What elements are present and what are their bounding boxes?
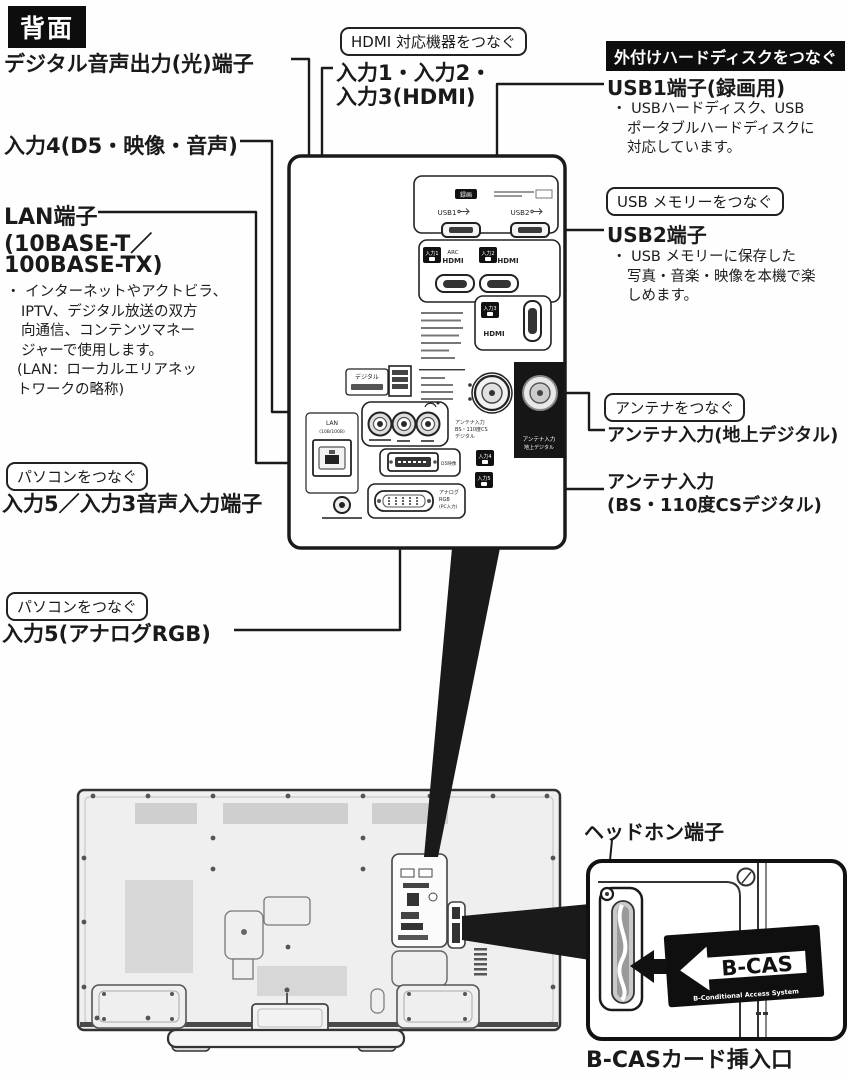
analog-rgb-label2: RGB <box>439 497 450 503</box>
tv-panel-plate-left <box>125 880 193 973</box>
lan-port <box>313 440 351 476</box>
bcas-logo: B-CAS <box>721 952 794 981</box>
hdmi1-label: HDMI <box>442 257 463 265</box>
antenna-terr-label1: アンテナ入力 <box>523 435 556 443</box>
analog-rgb-label3: (PC入力) <box>439 503 458 510</box>
hdmi3-label: HDMI <box>483 330 504 338</box>
label-digital-audio-out: デジタル音声出力(光)端子 <box>4 48 254 78</box>
label-antenna-bs-2: (BS・110度CSデジタル) <box>607 491 822 517</box>
note-line: (LAN：ローカルエリアネッ <box>17 361 227 381</box>
d5-label: D5映像 <box>441 460 457 467</box>
note-line: しめます。 <box>627 287 816 307</box>
tv-lower-recess <box>392 951 447 986</box>
note-line: 向通信、コンテンツマネー <box>21 322 227 342</box>
tv-label-box <box>264 897 310 925</box>
callout-connect-pc-2: パソコンをつなぐ <box>6 592 148 621</box>
callout-connect-hdmi: HDMI 対応機器をつなぐ <box>340 27 527 56</box>
label-input4: 入力4(D5・映像・音声) <box>4 130 238 160</box>
callout-connect-usb-memory: USB メモリーをつなぐ <box>606 187 784 216</box>
label-bcas-slot: B-CASカード挿入口 <box>586 1042 793 1074</box>
note-usb2: ・ USB メモリーに保存した 写真・音楽・映像を本機で楽 しめます。 <box>612 248 816 307</box>
hdmi3-section: 入力3 HDMI <box>475 296 551 350</box>
optical-port <box>389 366 411 396</box>
tv-panel-plate-center <box>257 966 347 996</box>
input1-badge-label: 入力1 <box>425 250 438 257</box>
label-hdmi-inputs-2: 入力3(HDMI) <box>336 81 476 111</box>
note-line: ・ インターネットやアクトビラ、 <box>6 283 227 303</box>
bcas-inset: B-CAS B-Conditional Access System <box>588 861 845 1039</box>
input3-badge-label: 入力3 <box>483 305 496 312</box>
lan-section: LAN (10B/100B) <box>306 413 358 493</box>
side-jack-strip <box>600 888 642 1010</box>
hdmi2-port <box>480 275 518 292</box>
rca-jack-video <box>393 413 416 436</box>
diagram-graphics: 録画 USB1 USB2 入力1 <box>0 0 849 1080</box>
note-usb1: ・ USBハードディスク、USB ポータブルハードディスクに 対応しています。 <box>612 100 814 159</box>
label-lan-3: 100BASE-TX) <box>4 253 163 278</box>
label-usb2: USB2端子 <box>607 219 707 248</box>
connector-panel: 録画 USB1 USB2 入力1 <box>289 156 565 548</box>
antenna-bs-label3: デジタル <box>455 433 475 440</box>
hdmi2-label: HDMI <box>497 257 518 265</box>
optical-out-section: デジタル <box>346 366 411 396</box>
bcas-card: B-CAS B-Conditional Access System <box>664 925 825 1008</box>
antenna-bs-label1: アンテナ入力 <box>455 419 485 426</box>
analog-rgb-label1: アナログ <box>439 489 459 496</box>
antenna-terr-connector <box>523 376 557 410</box>
usb1-port <box>442 223 480 237</box>
note-lan: ・ インターネットやアクトビラ、 IPTV、デジタル放送の双方 向通信、コンテン… <box>6 283 227 400</box>
label-input5-audio: 入力5／入力3音声入力端子 <box>2 488 262 518</box>
lan-speed-label: (10B/100B) <box>319 429 345 435</box>
d-terminal-section: D5映像 <box>380 449 460 476</box>
note-line: ・ USB メモリーに保存した <box>612 248 816 268</box>
label-antenna-terrestrial: アンテナ入力(地上デジタル) <box>607 421 838 447</box>
tv-vents <box>135 803 448 824</box>
manual-page: 録画 USB1 USB2 入力1 <box>0 0 849 1080</box>
note-line: 写真・音楽・映像を本機で楽 <box>627 268 816 288</box>
hdmi-section: 入力1 入力2 ARC HDMI HDMI <box>419 240 560 302</box>
rca-jack-audio <box>417 413 440 436</box>
arc-label: ARC <box>447 250 458 256</box>
antenna-bs-connector <box>475 376 509 410</box>
antenna-bs-label2: BS・110度CS <box>455 426 488 433</box>
usb1-port-label: USB1 <box>438 209 457 217</box>
tv-connector-recess <box>392 854 447 947</box>
note-line: ポータブルハードディスクに <box>627 120 814 140</box>
page-title: 背面 <box>8 6 86 48</box>
label-headphone: ヘッドホン端子 <box>584 816 724 845</box>
note-line: ジャーで使用します。 <box>21 342 227 362</box>
label-input5-rgb: 入力5(アナログRGB) <box>2 618 211 648</box>
note-line: トワークの略称) <box>17 381 227 401</box>
note-line: 対応しています。 <box>627 139 814 159</box>
usb-section: 録画 USB1 USB2 <box>414 176 558 237</box>
callout-connect-antenna: アンテナをつなぐ <box>604 393 745 422</box>
note-line: IPTV、デジタル放送の双方 <box>21 303 227 323</box>
input4-badge-label: 入力4 <box>478 453 491 460</box>
input2-badge-label: 入力2 <box>481 250 494 257</box>
hdmi3-port <box>524 301 541 341</box>
note-line: ・ USBハードディスク、USB <box>612 100 814 120</box>
rec-badge-label: 録画 <box>460 191 472 199</box>
hdmi1-port <box>436 275 474 292</box>
av-input-section <box>362 402 448 447</box>
callout-connect-hdd: 外付けハードディスクをつなぐ <box>606 41 845 71</box>
lan-label: LAN <box>326 420 338 427</box>
rgb-section: アナログ RGB (PC入力) <box>368 484 465 518</box>
antenna-terr-label2: 地上デジタル <box>524 444 554 451</box>
digital-label: デジタル <box>355 373 379 381</box>
input5-badge-label: 入力5 <box>477 475 490 482</box>
callout-connect-pc-1: パソコンをつなぐ <box>6 462 148 491</box>
rca-jack-component <box>369 413 392 436</box>
label-usb1: USB1端子(録画用) <box>607 72 785 101</box>
usb2-port-label: USB2 <box>511 209 530 217</box>
usb2-port <box>511 223 549 237</box>
